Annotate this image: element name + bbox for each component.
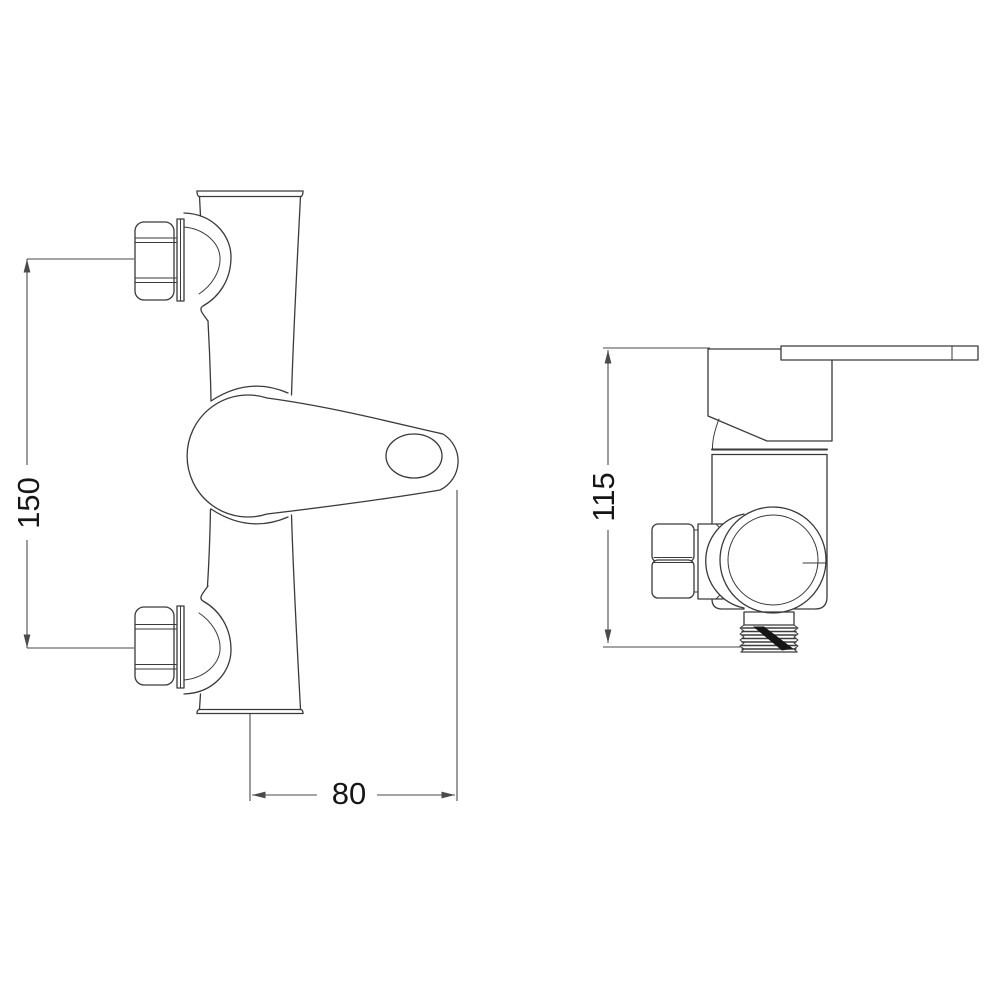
side-threaded-outlet [740,612,798,652]
handle-hole [386,434,442,478]
side-view [652,346,978,652]
technical-drawing: 150 80 115 [0,0,1000,1000]
front-view [135,191,458,714]
escutcheon-bell [184,586,231,694]
dimension-150: 150 [11,259,134,648]
escutcheon-bell [184,213,231,321]
front-bottom-cap [197,710,303,714]
side-hex-nut [652,524,698,598]
dimension-80: 80 [250,490,457,811]
dim-label-115: 115 [586,472,621,521]
front-body-upper [200,197,301,402]
front-top-cap [197,191,303,197]
arrow-left [252,792,266,799]
front-top-union [135,213,231,321]
hex-nut [135,222,174,300]
arrow-up [605,350,612,364]
arrow-down [24,635,31,649]
dim-label-150: 150 [11,477,46,529]
side-handle [708,346,978,450]
arrow-down [605,630,612,644]
dimension-115: 115 [586,348,741,647]
dim-label-80: 80 [332,776,366,811]
front-lever-handle [187,395,458,517]
front-bottom-union [135,586,231,694]
arrow-up [24,259,31,273]
arrow-right [442,792,456,799]
handle-blade [781,346,978,360]
hex-nut [135,607,174,685]
drawing-canvas: 150 80 115 [0,0,1000,1000]
